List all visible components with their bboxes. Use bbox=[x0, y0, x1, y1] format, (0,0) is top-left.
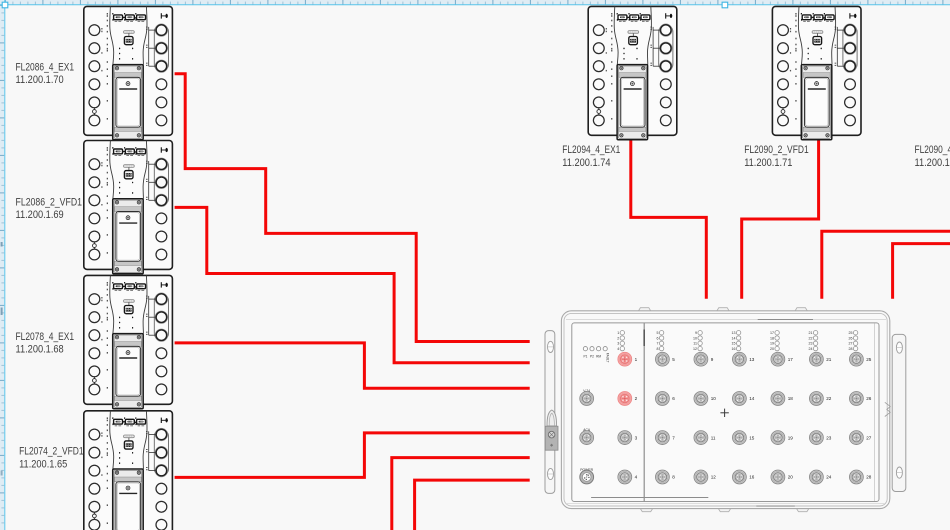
svg-text:11.200.1.68: 11.200.1.68 bbox=[16, 344, 64, 356]
svg-text:19: 19 bbox=[788, 435, 794, 440]
svg-text:4: 4 bbox=[617, 347, 619, 351]
svg-text:9: 9 bbox=[695, 331, 697, 335]
svg-text:FL2074_2_VFD1: FL2074_2_VFD1 bbox=[19, 446, 84, 458]
svg-text:23: 23 bbox=[809, 342, 813, 346]
svg-text:5: 5 bbox=[657, 331, 659, 335]
svg-text:11.200.1.69: 11.200.1.69 bbox=[16, 209, 64, 221]
svg-text:17: 17 bbox=[770, 331, 774, 335]
svg-text:21: 21 bbox=[826, 357, 832, 362]
svg-text:8: 8 bbox=[657, 347, 659, 351]
svg-text:14: 14 bbox=[749, 396, 755, 401]
svg-text:5: 5 bbox=[672, 357, 675, 362]
svg-text:11.200.1.73: 11.200.1.73 bbox=[915, 157, 950, 169]
svg-text:13: 13 bbox=[749, 357, 755, 362]
svg-text:7: 7 bbox=[657, 342, 659, 346]
svg-text:27: 27 bbox=[849, 342, 853, 346]
svg-text:FL2094_4_EX1: FL2094_4_EX1 bbox=[562, 144, 620, 156]
svg-text:24: 24 bbox=[809, 347, 813, 351]
svg-text:3: 3 bbox=[635, 435, 638, 440]
svg-text:FL2090_4_EX1: FL2090_4_EX1 bbox=[915, 144, 950, 156]
svg-text:12: 12 bbox=[711, 475, 717, 480]
svg-text:8: 8 bbox=[672, 475, 675, 480]
svg-text:11.200.1.65: 11.200.1.65 bbox=[19, 458, 67, 470]
svg-text:6: 6 bbox=[657, 336, 659, 340]
svg-text:18: 18 bbox=[788, 396, 794, 401]
svg-text:P2: P2 bbox=[590, 355, 594, 359]
svg-text:17: 17 bbox=[788, 357, 794, 362]
svg-text:6: 6 bbox=[672, 396, 675, 401]
svg-text:16: 16 bbox=[732, 347, 736, 351]
svg-text:21: 21 bbox=[809, 331, 813, 335]
svg-text:13: 13 bbox=[732, 331, 736, 335]
svg-text:11: 11 bbox=[711, 435, 716, 440]
svg-text:14: 14 bbox=[732, 336, 736, 340]
svg-text:P1: P1 bbox=[583, 355, 587, 359]
svg-text:20: 20 bbox=[788, 475, 794, 480]
svg-text:15: 15 bbox=[749, 435, 755, 440]
svg-text:3: 3 bbox=[617, 342, 619, 346]
svg-text:2: 2 bbox=[635, 396, 638, 401]
svg-text:19: 19 bbox=[770, 342, 774, 346]
svg-text:11.200.1.70: 11.200.1.70 bbox=[16, 74, 64, 86]
svg-text:22: 22 bbox=[826, 396, 832, 401]
svg-text:1: 1 bbox=[617, 331, 619, 335]
svg-text:16: 16 bbox=[749, 475, 755, 480]
svg-text:15: 15 bbox=[732, 342, 736, 346]
svg-text:27: 27 bbox=[866, 435, 872, 440]
svg-text:10: 10 bbox=[711, 396, 717, 401]
svg-text:9: 9 bbox=[711, 357, 714, 362]
svg-text:26: 26 bbox=[866, 396, 872, 401]
svg-text:11: 11 bbox=[693, 342, 697, 346]
svg-text:RM: RM bbox=[596, 355, 601, 359]
svg-text:FL2086_2_VFD1: FL2086_2_VFD1 bbox=[16, 196, 83, 208]
svg-text:11.200.1.74: 11.200.1.74 bbox=[562, 157, 610, 169]
svg-text:11.200.1.71: 11.200.1.71 bbox=[744, 157, 792, 169]
svg-text:4: 4 bbox=[635, 475, 638, 480]
svg-text:10: 10 bbox=[693, 336, 697, 340]
svg-text:2: 2 bbox=[617, 336, 619, 340]
svg-text:FL2078_4_EX1: FL2078_4_EX1 bbox=[16, 331, 75, 343]
svg-text:20: 20 bbox=[770, 347, 774, 351]
svg-text:18: 18 bbox=[770, 336, 774, 340]
svg-text:24: 24 bbox=[826, 475, 832, 480]
svg-text:12: 12 bbox=[693, 347, 697, 351]
svg-text:28: 28 bbox=[866, 475, 872, 480]
svg-text:23: 23 bbox=[826, 435, 832, 440]
svg-text:26: 26 bbox=[849, 336, 853, 340]
svg-text:FL2090_2_VFD1: FL2090_2_VFD1 bbox=[744, 144, 809, 156]
svg-text:FL2086_4_EX1: FL2086_4_EX1 bbox=[16, 62, 75, 74]
svg-text:1: 1 bbox=[635, 357, 638, 362]
svg-text:22: 22 bbox=[809, 336, 813, 340]
svg-text:7: 7 bbox=[672, 435, 675, 440]
svg-text:25: 25 bbox=[849, 331, 853, 335]
svg-text:25: 25 bbox=[866, 357, 872, 362]
svg-text:FAULT: FAULT bbox=[606, 353, 610, 363]
svg-text:28: 28 bbox=[849, 347, 853, 351]
